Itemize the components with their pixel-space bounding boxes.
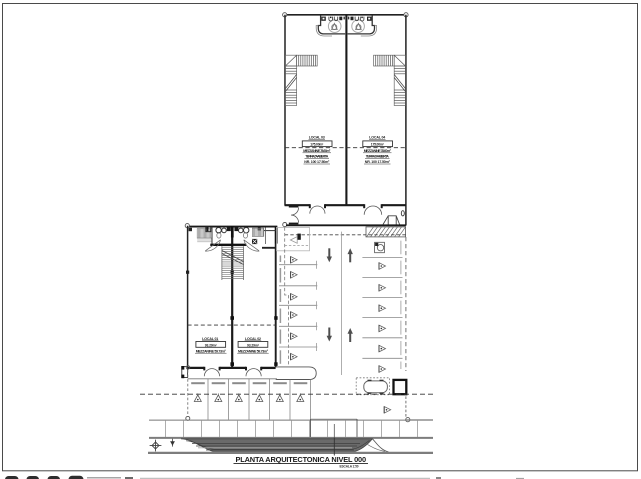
svg-text:175.00m²: 175.00m² (371, 143, 385, 147)
svg-text:MEZZANINE 59.73m²: MEZZANINE 59.73m² (238, 349, 269, 353)
svg-text:TERRAZA ABIERTA: TERRAZA ABIERTA (366, 155, 389, 159)
svg-text:MEZZANINE 78.60m²: MEZZANINE 78.60m² (303, 149, 331, 153)
svg-text:MEZZANINE 59.73m²: MEZZANINE 59.73m² (196, 349, 227, 353)
svg-text:LOCAL 04: LOCAL 04 (369, 136, 385, 140)
svg-text:LOCAL 01: LOCAL 01 (202, 337, 218, 341)
svg-text:LOCAL 03: LOCAL 03 (309, 136, 325, 140)
svg-text:NR. 100 17.50m²: NR. 100 17.50m² (365, 160, 391, 164)
svg-text:MEZZANINE 78.60m²: MEZZANINE 78.60m² (364, 149, 392, 153)
svg-text:LOCAL 02: LOCAL 02 (245, 337, 261, 341)
svg-text:TERRAZA ABIERTA: TERRAZA ABIERTA (305, 155, 328, 159)
svg-text:93.29m²: 93.29m² (247, 343, 260, 347)
svg-text:PLANTA ARQUITECTONICA NIVEL 00: PLANTA ARQUITECTONICA NIVEL 000 (236, 455, 367, 464)
svg-text:NR. 100 17.50m²: NR. 100 17.50m² (304, 160, 330, 164)
svg-text:93.29m²: 93.29m² (205, 343, 218, 347)
svg-text:175.00m²: 175.00m² (310, 143, 324, 147)
svg-text:ESCALA 1:50: ESCALA 1:50 (340, 465, 359, 469)
